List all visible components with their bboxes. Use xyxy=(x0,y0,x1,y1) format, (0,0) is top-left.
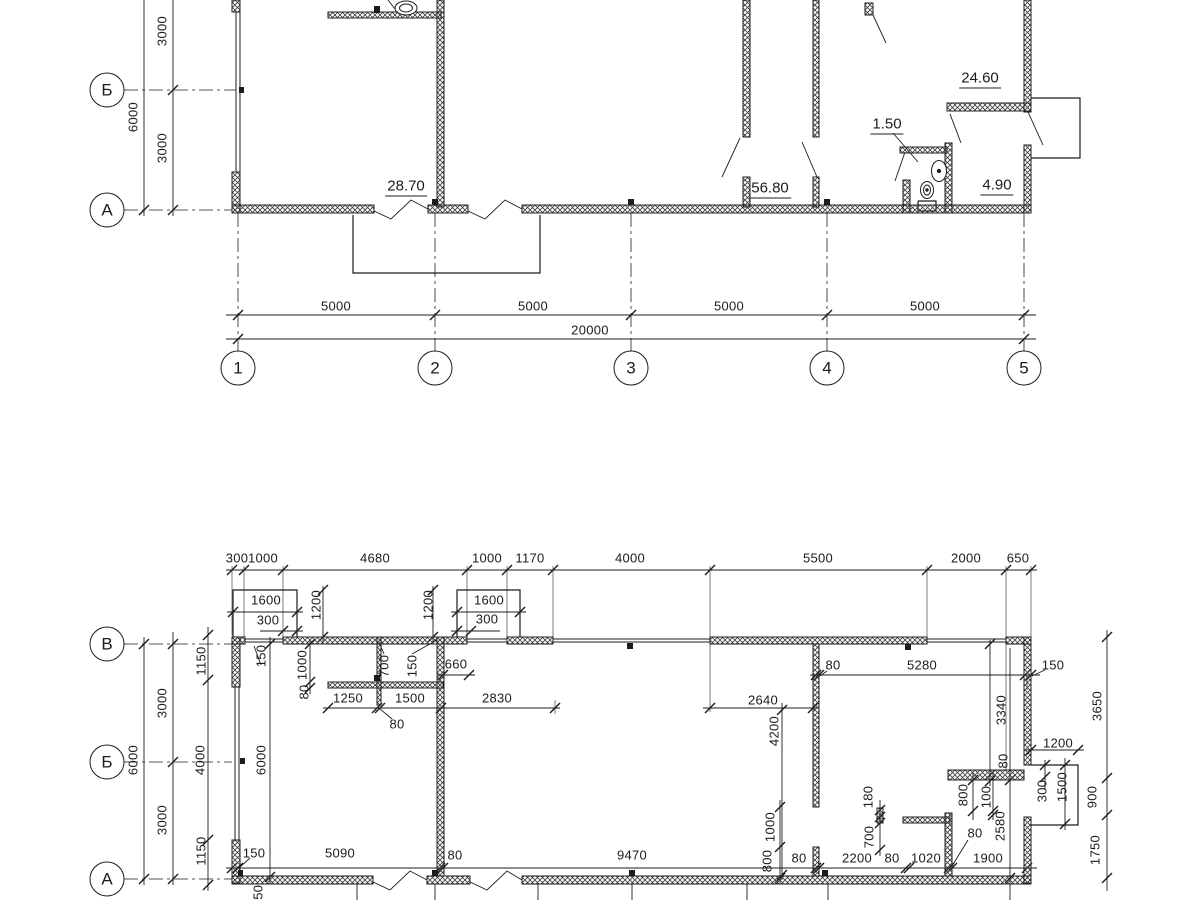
dimension-label: 80 xyxy=(884,851,899,866)
dimension-label: 300 xyxy=(476,612,499,627)
dimension-label: 80 xyxy=(389,717,404,732)
dimension-label: 5000 xyxy=(518,299,548,314)
dimension-label: 1200 xyxy=(1043,736,1073,751)
dimension-label: 4000 xyxy=(193,745,208,775)
walls xyxy=(232,0,1031,884)
plumbing-fixtures xyxy=(395,1,947,199)
dimension-label: 1000 xyxy=(472,551,502,566)
dimension-label: 3340 xyxy=(994,695,1009,725)
dimension-label: 150 xyxy=(254,645,269,668)
dimension-label: 1000 xyxy=(295,650,310,680)
dimension-label: 3000 xyxy=(155,688,170,718)
dimension-lines xyxy=(139,0,1112,891)
dimension-label: 80 xyxy=(447,848,462,863)
axis-row-bubble: Б xyxy=(90,73,125,108)
dimension-label: 80 xyxy=(996,753,1011,768)
axis-column-bubble: 5 xyxy=(1007,351,1042,386)
dimension-label: 6000 xyxy=(254,745,269,775)
column-markers xyxy=(238,6,911,876)
dimension-label: 5500 xyxy=(803,551,833,566)
dimension-label: 150 xyxy=(405,655,420,678)
dimension-label: 4200 xyxy=(767,716,782,746)
dimension-label: 2200 xyxy=(842,851,872,866)
window-lines xyxy=(235,12,1006,840)
dimension-label: 2000 xyxy=(951,551,981,566)
dimension-label: 9470 xyxy=(617,848,647,863)
dimension-label: 1250 xyxy=(333,691,363,706)
dimension-label: 3000 xyxy=(155,133,170,163)
dimension-label: 800 xyxy=(956,784,971,807)
dimension-label: 150 xyxy=(243,846,266,861)
dimension-label: 180 xyxy=(861,786,876,809)
door-swings xyxy=(240,0,1045,900)
dimension-label: 5000 xyxy=(321,299,351,314)
dimension-label: 1200 xyxy=(421,590,436,620)
dimension-label: 900 xyxy=(1085,786,1100,809)
dimension-label: 1750 xyxy=(1088,835,1103,865)
axis-row-bubble: В xyxy=(90,627,125,662)
dimension-label: 1170 xyxy=(515,551,544,566)
dimension-label: 1900 xyxy=(973,851,1003,866)
dimension-label: 80 xyxy=(825,658,840,673)
dimension-label: 1600 xyxy=(474,593,504,608)
dimension-label: 3000 xyxy=(155,16,170,46)
room-area-label: 24.60 xyxy=(959,70,1001,89)
dimension-label: 1020 xyxy=(911,851,941,866)
room-area-label: 4.90 xyxy=(980,177,1013,196)
axis-column-bubble: 1 xyxy=(221,351,256,386)
axis-row-bubble: А xyxy=(90,862,125,897)
break-lines xyxy=(373,200,522,890)
dimension-label: 300 xyxy=(226,551,249,566)
floor-plan-drawing: БАВБА1234528.7056.801.5024.604.903000600… xyxy=(0,0,1200,900)
dimension-label: 1000 xyxy=(248,551,278,566)
dimension-label: 80 xyxy=(791,851,806,866)
dimension-label: 800 xyxy=(760,850,775,873)
dimension-label: 1000 xyxy=(763,812,778,842)
dimension-label: 3650 xyxy=(1090,691,1105,721)
dimension-label: 5090 xyxy=(325,846,355,861)
dimension-label: 20000 xyxy=(571,323,609,338)
dimension-label: 1150 xyxy=(194,836,209,865)
dimension-label: 150 xyxy=(251,885,266,900)
dimension-label: 80 xyxy=(967,826,982,841)
axis-column-bubble: 4 xyxy=(810,351,845,386)
dimension-label: 5280 xyxy=(907,658,937,673)
dimension-label: 6000 xyxy=(126,745,141,775)
dimension-label: 1150 xyxy=(194,646,209,675)
room-area-label: 1.50 xyxy=(870,116,903,135)
axis-row-bubble: А xyxy=(90,193,125,228)
dimension-label: 4680 xyxy=(360,551,390,566)
axis-row-bubble: Б xyxy=(90,745,125,780)
dimension-label: 700 xyxy=(862,826,877,849)
dimension-label: 3000 xyxy=(155,805,170,835)
plan-geometry xyxy=(0,0,1200,900)
dimension-label: 100 xyxy=(979,786,994,809)
dimension-label: 150 xyxy=(1042,658,1065,673)
dimension-label: 300 xyxy=(1035,780,1050,803)
axis-column-bubble: 2 xyxy=(418,351,453,386)
dimension-label: 2640 xyxy=(748,693,778,708)
dimension-label: 4000 xyxy=(615,551,645,566)
dimension-label: 2580 xyxy=(993,811,1008,841)
dimension-label: 1500 xyxy=(395,691,425,706)
dimension-label: 5000 xyxy=(910,299,940,314)
dimension-label: 1500 xyxy=(1055,772,1070,802)
dimension-label: 700 xyxy=(377,655,392,678)
dimension-label: 650 xyxy=(1007,551,1030,566)
room-area-label: 28.70 xyxy=(385,178,427,197)
axis-column-bubble: 3 xyxy=(614,351,649,386)
dimension-label: 1200 xyxy=(309,590,324,620)
dimension-label: 1600 xyxy=(251,593,281,608)
dimension-label: 6000 xyxy=(126,102,141,132)
room-area-label: 56.80 xyxy=(749,180,791,199)
dimension-label: 300 xyxy=(257,613,280,628)
dimension-label: 5000 xyxy=(714,299,744,314)
dimension-label: 660 xyxy=(445,657,468,672)
dimension-label: 80 xyxy=(297,684,312,699)
dimension-label: 2830 xyxy=(482,691,512,706)
